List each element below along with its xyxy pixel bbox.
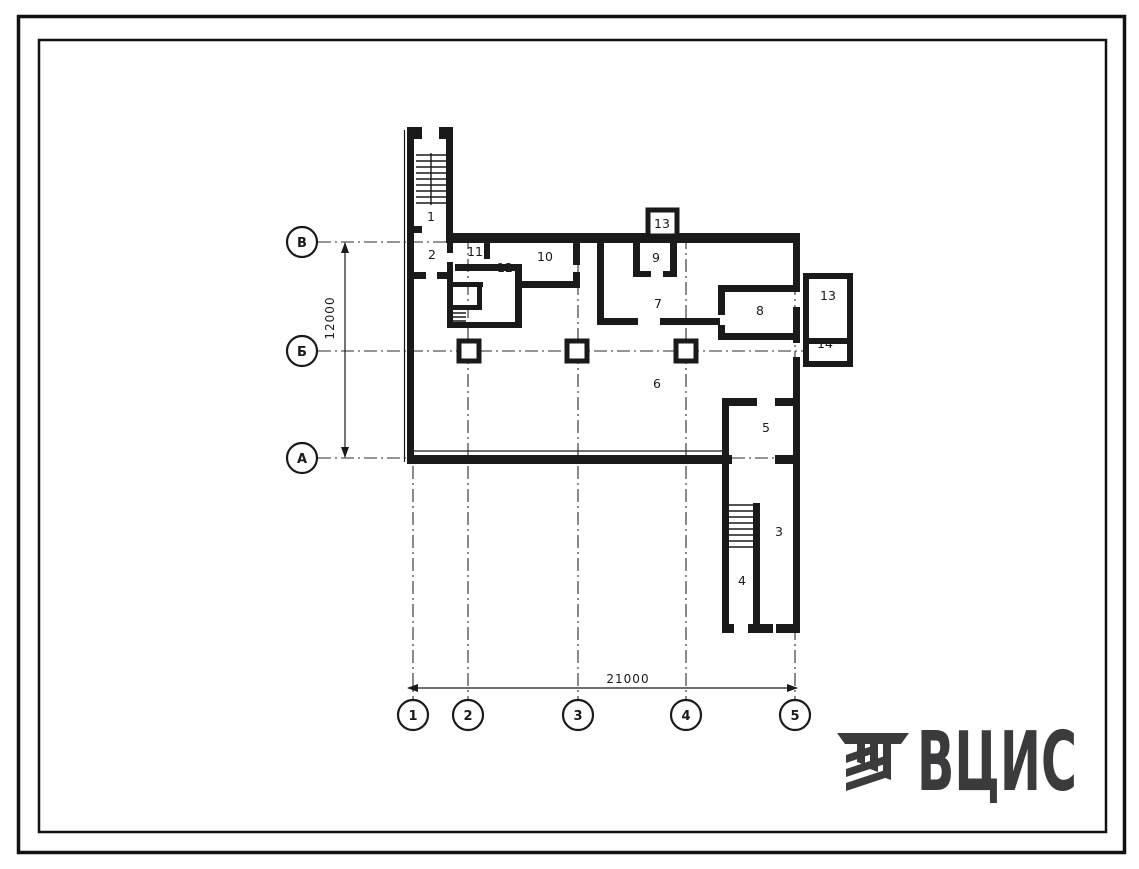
logo-text: ВЦИС: [917, 715, 1077, 810]
axis-label-col-4: 4: [681, 709, 690, 724]
dim-arrow-up: [341, 242, 349, 253]
column-2: [567, 341, 587, 361]
dimension-horizontal-value: 21000: [606, 672, 649, 686]
room-label-13-shaft: 13: [654, 216, 670, 231]
thin-lines: [405, 130, 729, 462]
logo: ВЦИС: [837, 715, 1077, 810]
axis-label-col-1: 1: [408, 709, 417, 724]
room-label-10: 10: [537, 249, 553, 264]
room-label-12: 12: [497, 260, 513, 275]
axis-label-col-3: 3: [573, 709, 582, 724]
column-1: [459, 341, 479, 361]
column-3: [676, 341, 696, 361]
axis-label-row-v: В: [297, 236, 307, 251]
dim-arrow-down: [341, 447, 349, 458]
room-label-4: 4: [738, 573, 746, 588]
room-label-7: 7: [654, 296, 662, 311]
room-label-2: 2: [428, 247, 436, 262]
room-label-5: 5: [762, 420, 770, 435]
axis-label-col-2: 2: [463, 709, 472, 724]
room-label-8: 8: [756, 303, 764, 318]
axis-label-row-a: А: [297, 452, 307, 467]
axis-label-col-5: 5: [790, 709, 799, 724]
blueprint-sheet: 12000 21000 В Б А 1 2 3 4 5 1 2 11 12 10…: [0, 0, 1139, 869]
room-label-6: 6: [653, 376, 661, 391]
dimension-vertical-value: 12000: [323, 296, 337, 339]
room-label-14: 14: [817, 336, 833, 351]
dim-arrow-right: [787, 684, 798, 692]
walls: [407, 127, 800, 633]
axis-label-row-b: Б: [297, 345, 307, 360]
logo-icon: [837, 733, 909, 791]
col-axis-markers: 1 2 3 4 5: [398, 700, 810, 730]
room-label-9: 9: [652, 250, 660, 265]
room-label-1: 1: [427, 209, 435, 224]
room-label-11: 11: [467, 244, 483, 259]
row-axis-markers: В Б А: [287, 227, 317, 473]
room-label-13-annex: 13: [820, 288, 836, 303]
room-label-3: 3: [775, 524, 783, 539]
